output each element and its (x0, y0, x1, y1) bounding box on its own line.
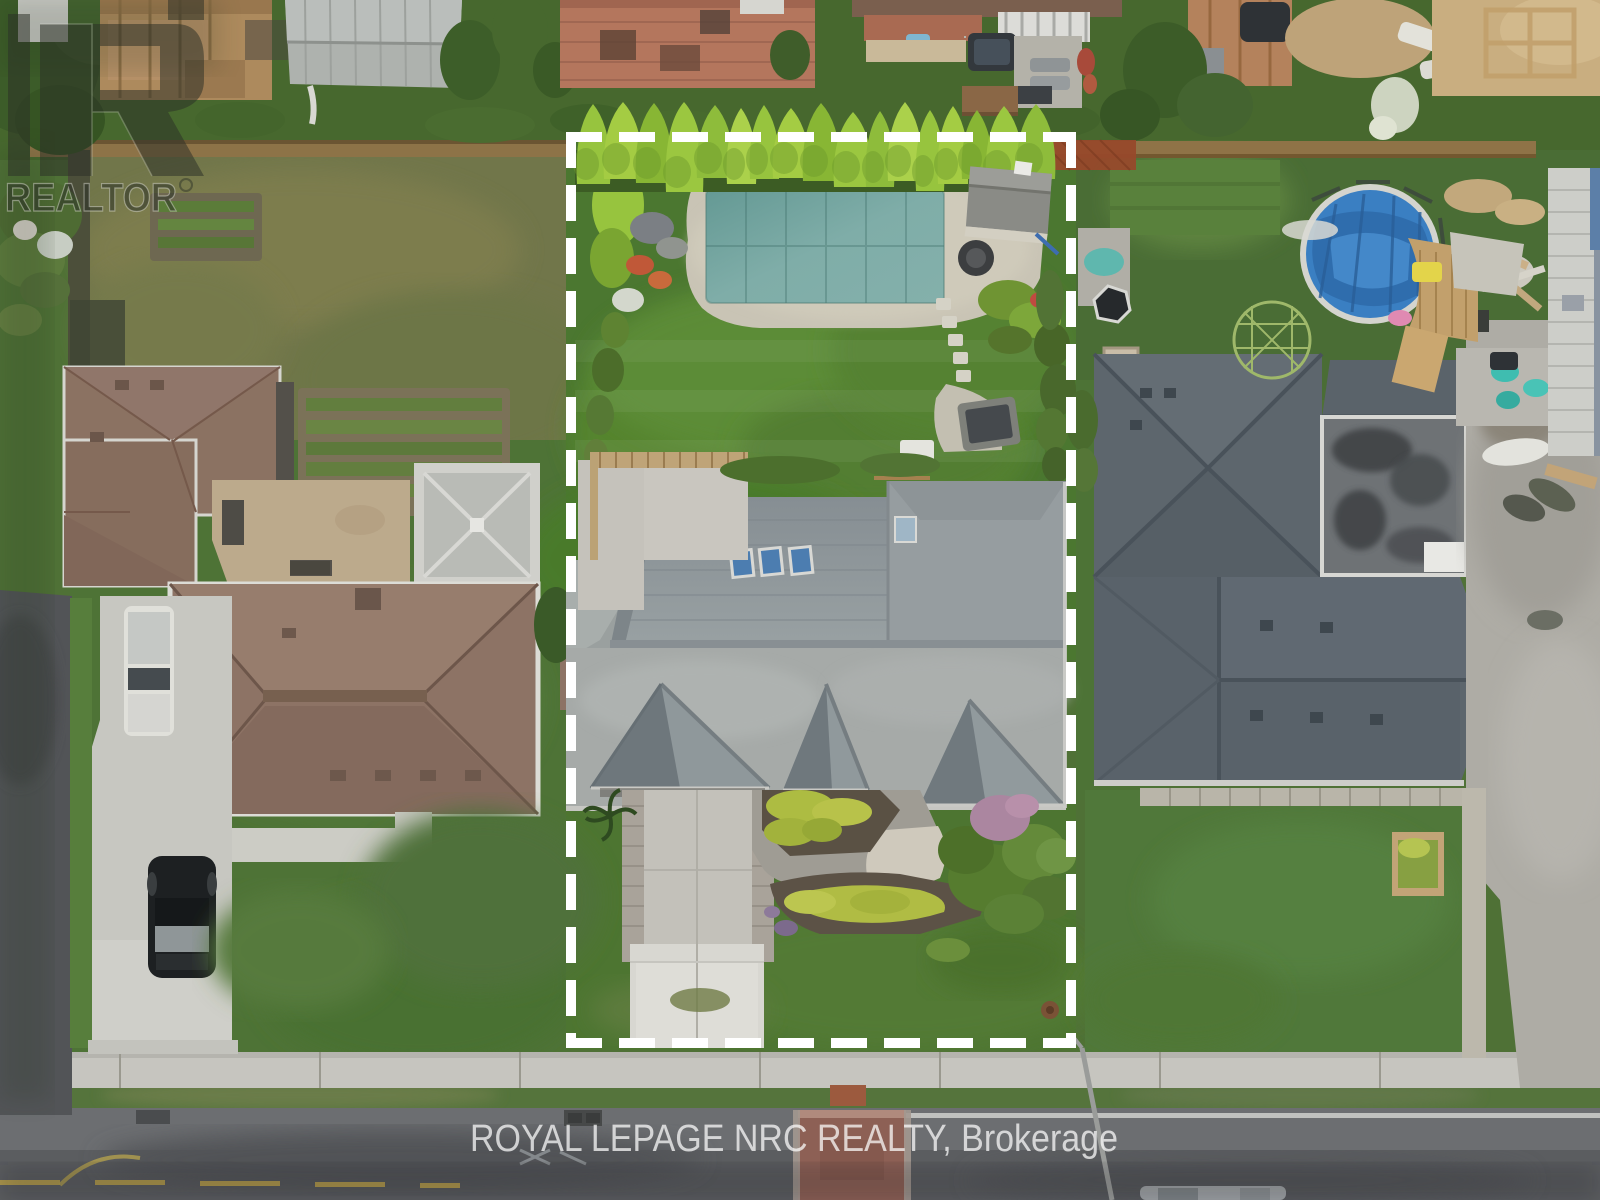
svg-text:REALTOR: REALTOR (5, 176, 177, 220)
svg-text:ROYAL LEPAGE NRC REALTY, Broke: ROYAL LEPAGE NRC REALTY, Brokerage (470, 1118, 1118, 1160)
